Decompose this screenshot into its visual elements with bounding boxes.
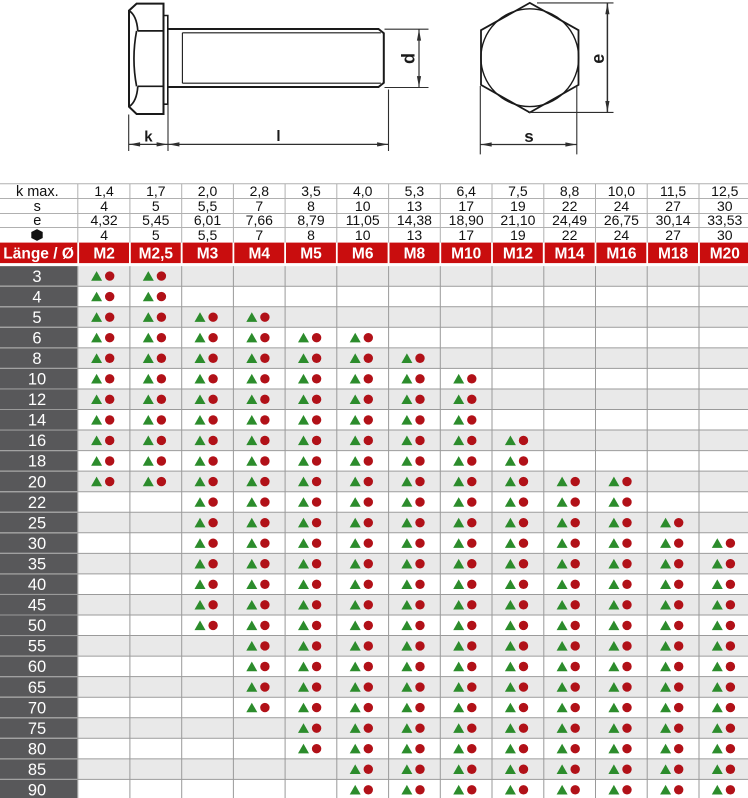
- svg-text:2,0: 2,0: [198, 183, 218, 199]
- svg-text:10: 10: [355, 227, 371, 243]
- svg-text:33,53: 33,53: [707, 212, 742, 228]
- svg-text:M4: M4: [249, 245, 271, 262]
- svg-text:24: 24: [614, 227, 630, 243]
- svg-text:22: 22: [28, 494, 46, 512]
- svg-text:90: 90: [28, 782, 46, 798]
- svg-text:8,79: 8,79: [297, 212, 324, 228]
- svg-text:7: 7: [255, 227, 263, 243]
- svg-text:M10: M10: [451, 245, 481, 262]
- svg-text:30: 30: [28, 535, 46, 553]
- svg-text:19: 19: [510, 227, 526, 243]
- svg-text:10: 10: [28, 371, 46, 389]
- svg-text:40: 40: [28, 576, 46, 594]
- svg-text:M12: M12: [503, 245, 533, 262]
- svg-text:30: 30: [717, 227, 733, 243]
- svg-text:M16: M16: [606, 245, 637, 262]
- svg-text:Länge / Ø: Länge / Ø: [3, 245, 74, 262]
- svg-text:s: s: [524, 127, 533, 146]
- svg-text:5,5: 5,5: [198, 227, 218, 243]
- svg-text:M8: M8: [404, 245, 426, 262]
- svg-text:27: 27: [665, 227, 681, 243]
- svg-text:12: 12: [28, 391, 46, 409]
- svg-text:2,8: 2,8: [250, 183, 270, 199]
- svg-text:6: 6: [32, 329, 41, 347]
- svg-text:13: 13: [407, 227, 423, 243]
- svg-text:14,38: 14,38: [397, 212, 432, 228]
- svg-text:26,75: 26,75: [604, 212, 639, 228]
- svg-text:M18: M18: [658, 245, 689, 262]
- svg-text:10,0: 10,0: [608, 183, 635, 199]
- svg-text:17: 17: [458, 227, 474, 243]
- svg-text:16: 16: [28, 432, 46, 450]
- svg-text:11,05: 11,05: [346, 212, 380, 228]
- svg-text:4,0: 4,0: [353, 183, 373, 199]
- svg-text:18,90: 18,90: [449, 212, 484, 228]
- svg-text:M5: M5: [300, 245, 322, 262]
- svg-text:M20: M20: [710, 245, 740, 262]
- svg-text:k: k: [144, 128, 153, 145]
- svg-text:65: 65: [28, 679, 46, 697]
- svg-text:21,10: 21,10: [500, 212, 535, 228]
- svg-text:5,3: 5,3: [405, 183, 425, 199]
- svg-text:14: 14: [28, 412, 46, 430]
- svg-text:20: 20: [28, 473, 46, 491]
- svg-text:80: 80: [28, 740, 46, 758]
- svg-text:l: l: [276, 128, 280, 145]
- svg-text:M6: M6: [352, 245, 374, 262]
- svg-text:8: 8: [32, 350, 41, 368]
- svg-text:3,5: 3,5: [301, 183, 321, 199]
- svg-text:75: 75: [28, 720, 46, 738]
- svg-text:4,32: 4,32: [90, 212, 117, 228]
- svg-text:d: d: [398, 53, 418, 64]
- svg-text:11,5: 11,5: [660, 183, 686, 199]
- svg-text:M2: M2: [93, 245, 115, 262]
- svg-text:50: 50: [28, 617, 46, 635]
- svg-text:3: 3: [32, 268, 41, 286]
- svg-text:35: 35: [28, 555, 46, 573]
- svg-text:5,45: 5,45: [142, 212, 169, 228]
- svg-text:55: 55: [28, 638, 46, 656]
- svg-text:85: 85: [28, 761, 46, 779]
- svg-text:18: 18: [28, 453, 46, 471]
- svg-text:1,4: 1,4: [94, 183, 114, 199]
- svg-text:4: 4: [32, 288, 41, 306]
- svg-text:M14: M14: [555, 245, 586, 262]
- svg-text:8: 8: [307, 227, 315, 243]
- svg-text:22: 22: [562, 227, 578, 243]
- svg-text:30,14: 30,14: [656, 212, 691, 228]
- svg-text:e: e: [588, 54, 608, 64]
- svg-text:4: 4: [100, 227, 108, 243]
- svg-text:M2,5: M2,5: [139, 245, 174, 262]
- svg-text:25: 25: [28, 514, 46, 532]
- svg-text:5: 5: [32, 309, 41, 327]
- svg-text:1,7: 1,7: [146, 183, 166, 199]
- svg-text:8,8: 8,8: [560, 183, 580, 199]
- svg-text:24,49: 24,49: [552, 212, 587, 228]
- svg-text:6,01: 6,01: [194, 212, 221, 228]
- svg-text:70: 70: [28, 699, 46, 717]
- svg-text:e: e: [33, 213, 41, 229]
- svg-text:60: 60: [28, 658, 46, 676]
- svg-text:7,66: 7,66: [246, 212, 273, 228]
- svg-text:45: 45: [28, 597, 46, 615]
- svg-text:6,4: 6,4: [456, 183, 476, 199]
- svg-text:5: 5: [152, 227, 160, 243]
- svg-text:k max.: k max.: [16, 184, 59, 200]
- svg-text:M3: M3: [197, 245, 219, 262]
- svg-text:12,5: 12,5: [711, 183, 738, 199]
- svg-text:7,5: 7,5: [508, 183, 528, 199]
